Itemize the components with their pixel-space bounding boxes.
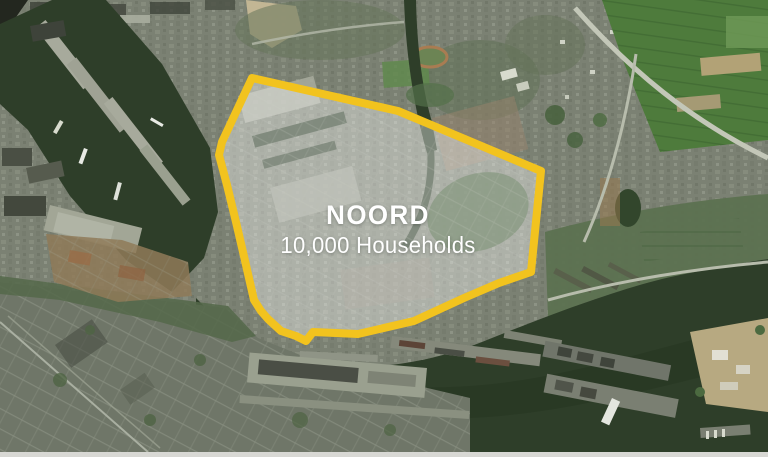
bottom-edge-strip [0, 452, 768, 457]
map-canvas [0, 0, 768, 457]
satellite-map: NOORD 10,000 Households [0, 0, 768, 457]
